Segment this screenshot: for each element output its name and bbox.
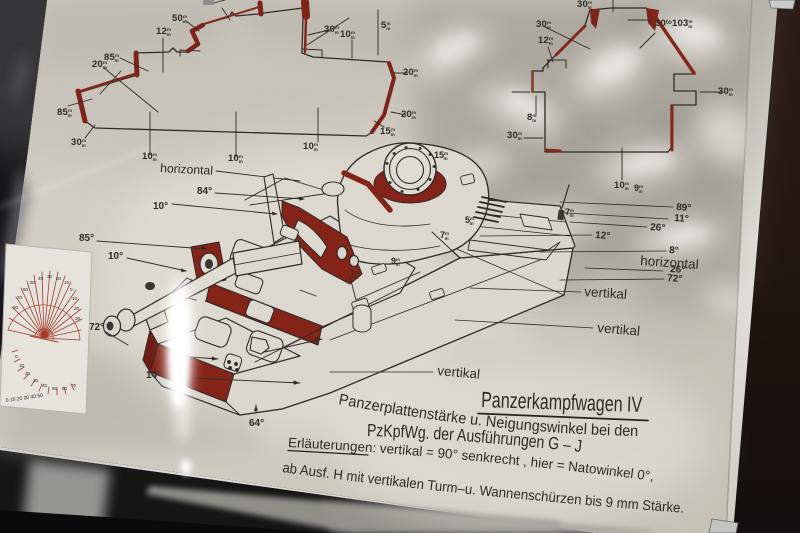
svg-text:0: 0 <box>70 287 73 292</box>
svg-text:9mm: 9mm <box>634 183 643 194</box>
svg-text:50: 50 <box>30 280 36 285</box>
svg-text:20mm: 20mm <box>401 109 416 120</box>
svg-text:15mm: 15mm <box>434 150 448 161</box>
svg-text:72°: 72° <box>89 322 104 333</box>
svg-text:30mm: 30mm <box>536 19 551 30</box>
svg-text:30mm: 30mm <box>324 24 339 35</box>
svg-text:20: 20 <box>25 371 31 376</box>
svg-text:30: 30 <box>33 378 39 383</box>
svg-text:26°: 26° <box>650 222 666 234</box>
svg-text:64°: 64° <box>249 418 264 429</box>
svg-text:40: 40 <box>38 276 44 281</box>
svg-text:10°: 10° <box>153 201 168 212</box>
svg-text:85mm: 85mm <box>57 107 72 118</box>
svg-text:8mm: 8mm <box>527 112 537 123</box>
svg-text:7mm: 7mm <box>440 230 449 241</box>
svg-text:60: 60 <box>62 386 68 391</box>
svg-text:30mm: 30mm <box>718 86 733 97</box>
svg-text:5mm: 5mm <box>465 215 474 226</box>
svg-text:Panzerkampfwagen IV: Panzerkampfwagen IV <box>481 387 643 417</box>
svg-text:12mm: 12mm <box>156 26 171 37</box>
svg-text:30to103mm: 30to103mm <box>655 18 693 29</box>
svg-text:14°: 14° <box>146 370 161 381</box>
svg-text:50: 50 <box>52 386 58 391</box>
svg-text:9mm: 9mm <box>391 256 400 267</box>
svg-text:20mm: 20mm <box>403 67 418 78</box>
svg-text:10mm: 10mm <box>303 141 318 152</box>
svg-text:85°: 85° <box>79 233 94 244</box>
svg-text:10°: 10° <box>108 251 123 262</box>
svg-text:60: 60 <box>23 287 29 292</box>
svg-text:20: 20 <box>56 276 62 281</box>
svg-text:12mm: 12mm <box>538 35 553 46</box>
svg-text:0: 0 <box>15 354 18 359</box>
svg-text:5mm: 5mm <box>381 20 391 31</box>
svg-text:10mm: 10mm <box>614 180 629 191</box>
svg-text:30mm: 30mm <box>71 137 86 148</box>
svg-text:30: 30 <box>75 316 81 321</box>
svg-text:84°: 84° <box>197 186 212 197</box>
svg-text:10mm: 10mm <box>142 151 157 162</box>
svg-text:7mm: 7mm <box>350 269 359 280</box>
svg-text:20: 20 <box>74 306 80 311</box>
svg-text:72°: 72° <box>667 273 683 285</box>
svg-text:10: 10 <box>64 280 70 285</box>
svg-text:50mm: 50mm <box>172 13 187 24</box>
svg-text:20mm: 20mm <box>92 59 107 70</box>
svg-text:40: 40 <box>42 383 48 388</box>
svg-text:10: 10 <box>19 363 25 368</box>
svg-text:30mm: 30mm <box>577 0 592 10</box>
svg-text:10mm: 10mm <box>340 29 355 40</box>
svg-text:30: 30 <box>47 274 53 279</box>
svg-text:vertikal: vertikal <box>584 284 628 302</box>
svg-text:89°: 89° <box>676 202 692 214</box>
svg-text:7mm: 7mm <box>565 207 574 218</box>
svg-text:15mm: 15mm <box>380 126 395 137</box>
svg-text:10mm: 10mm <box>228 153 243 164</box>
svg-text:11°: 11° <box>674 213 689 225</box>
svg-text:70: 70 <box>17 295 23 300</box>
svg-text:12°: 12° <box>595 230 611 242</box>
svg-text:horizontal: horizontal <box>160 161 214 178</box>
svg-text:70: 70 <box>71 383 77 388</box>
svg-text:80: 80 <box>13 305 19 310</box>
svg-text:10: 10 <box>72 296 78 301</box>
svg-text:30mm: 30mm <box>507 130 522 141</box>
